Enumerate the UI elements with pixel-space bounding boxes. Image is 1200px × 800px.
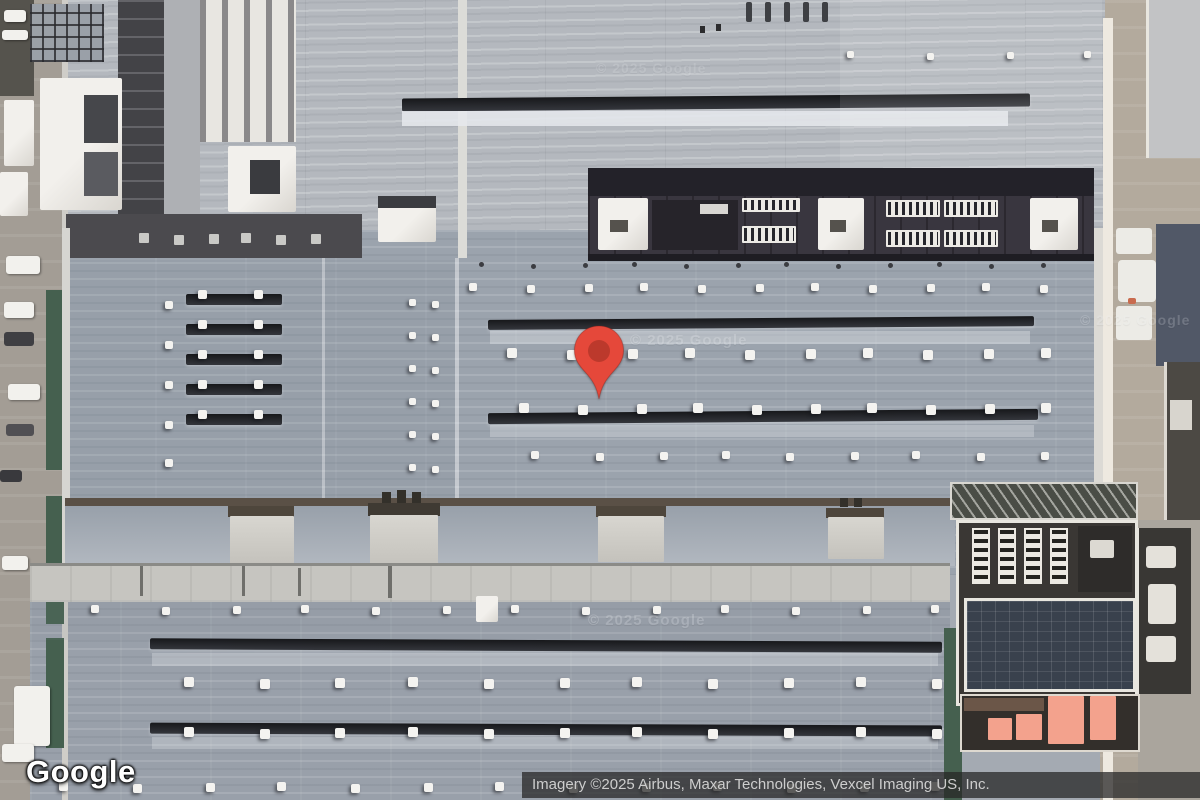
- imagery-watermark: © 2025 Google: [588, 612, 705, 629]
- salmon-panel: [1016, 714, 1042, 740]
- imagery-watermark: © 2025 Google: [596, 60, 706, 76]
- factory-roof-middle: [65, 230, 1103, 575]
- factory-roof-north: [65, 0, 1105, 230]
- attribution-bar: Imagery ©2025 Airbus, Maxar Technologies…: [522, 772, 1200, 798]
- factory-roof-south: [30, 600, 950, 800]
- pin-inner-circle: [588, 340, 610, 362]
- street-right: [1100, 0, 1200, 800]
- map-canvas[interactable]: © 2025 Google © 2025 Google © 2025 Googl…: [0, 0, 1200, 800]
- imagery-watermark: © 2025 Google: [1080, 312, 1190, 328]
- map-pin[interactable]: [572, 324, 626, 402]
- google-logo[interactable]: Google: [26, 754, 136, 790]
- attribution-text: Imagery ©2025 Airbus, Maxar Technologies…: [532, 776, 990, 793]
- pin-body: [575, 326, 624, 399]
- imagery-watermark: © 2025 Google: [630, 332, 747, 349]
- strip: [964, 698, 1044, 711]
- salmon-panel: [988, 718, 1012, 740]
- salmon-panel: [1048, 696, 1084, 744]
